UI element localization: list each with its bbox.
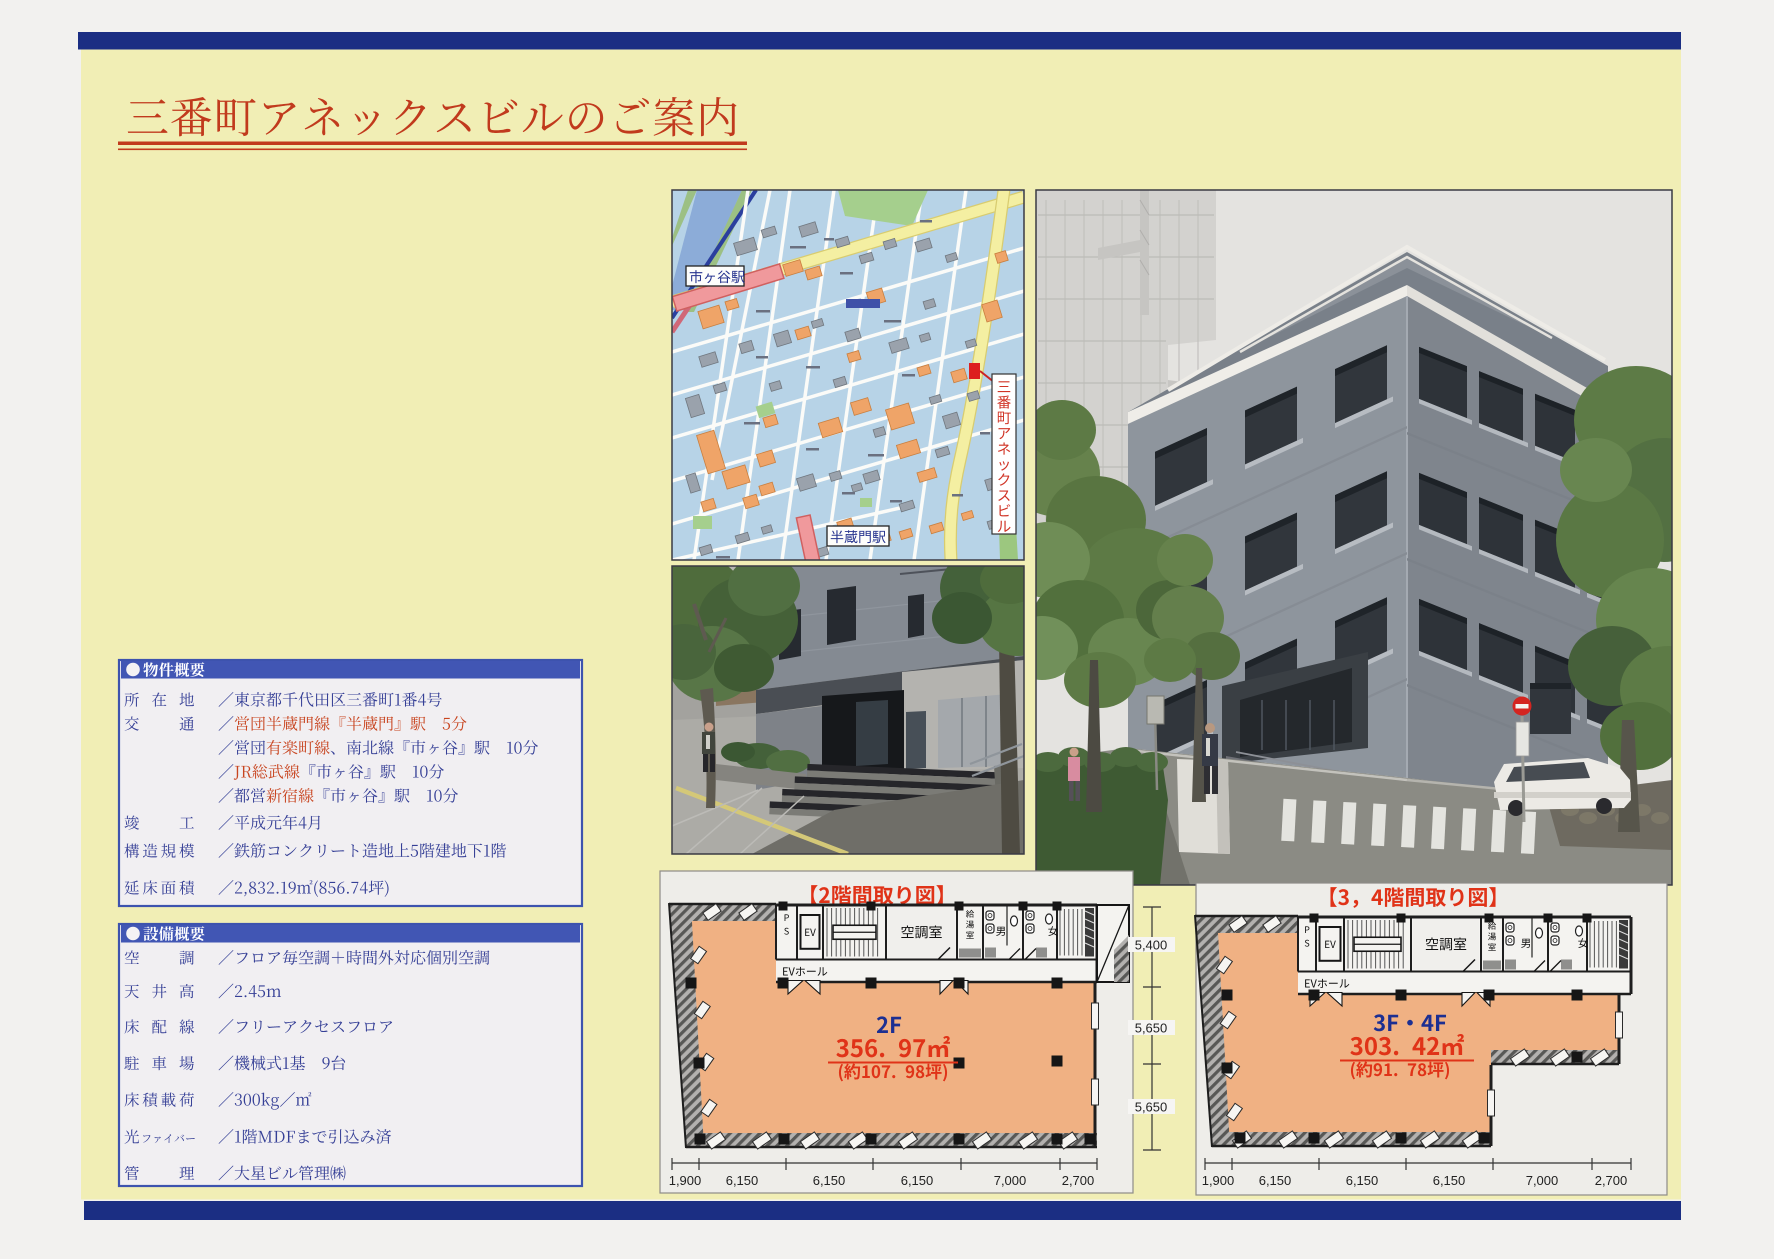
svg-text:5,650: 5,650 xyxy=(1135,1021,1168,1036)
svg-text:6,150: 6,150 xyxy=(1346,1173,1379,1188)
svg-text:2,700: 2,700 xyxy=(1062,1173,1095,1188)
svg-text:6,150: 6,150 xyxy=(726,1173,759,1188)
svg-text:5,650: 5,650 xyxy=(1135,1100,1168,1115)
svg-text:2,700: 2,700 xyxy=(1595,1173,1628,1188)
svg-text:6,150: 6,150 xyxy=(813,1173,846,1188)
svg-text:5,400: 5,400 xyxy=(1135,938,1168,953)
svg-text:6,150: 6,150 xyxy=(1433,1173,1466,1188)
svg-text:6,150: 6,150 xyxy=(901,1173,934,1188)
svg-text:7,000: 7,000 xyxy=(1526,1173,1559,1188)
svg-text:1,900: 1,900 xyxy=(669,1173,702,1188)
svg-text:1,900: 1,900 xyxy=(1202,1173,1235,1188)
svg-text:6,150: 6,150 xyxy=(1259,1173,1292,1188)
svg-text:7,000: 7,000 xyxy=(994,1173,1027,1188)
